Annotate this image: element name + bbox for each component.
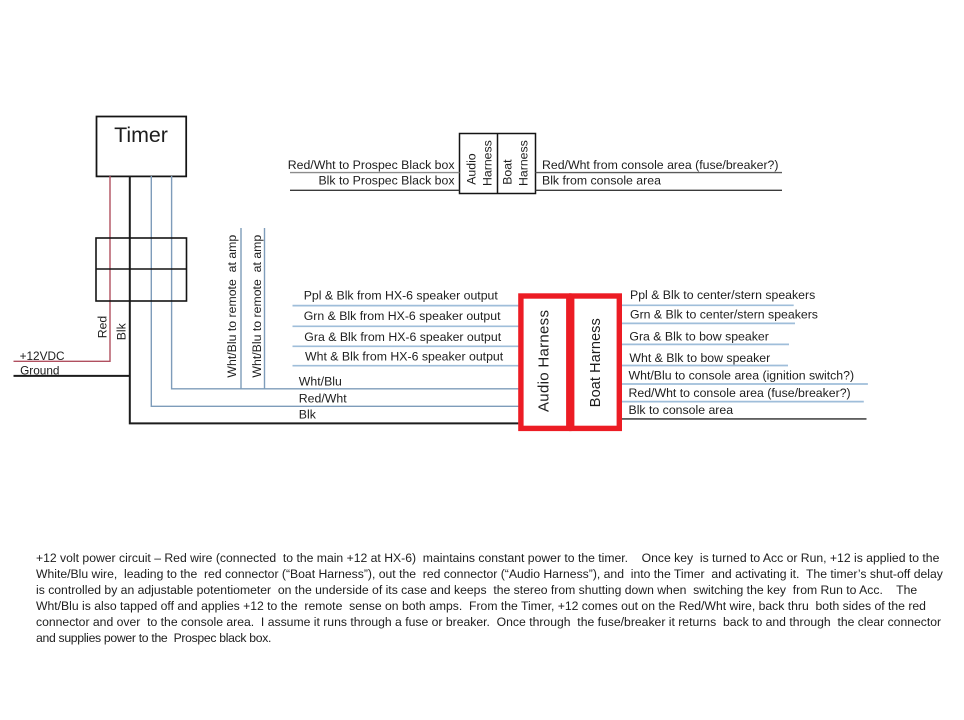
svg-text:Ppl & Blk from HX-6 speaker ou: Ppl & Blk from HX-6 speaker output xyxy=(304,289,499,303)
svg-text:Boat: Boat xyxy=(501,159,515,185)
svg-text:Red/Wht to console area (fuse/: Red/Wht to console area (fuse/breaker?) xyxy=(629,386,851,400)
svg-text:Audio Harness: Audio Harness xyxy=(536,310,553,412)
svg-text:Harness: Harness xyxy=(517,140,531,186)
svg-text:Grn & Blk from HX-6 speaker ou: Grn & Blk from HX-6 speaker output xyxy=(304,309,501,323)
svg-text:Red/Wht: Red/Wht xyxy=(299,392,347,406)
svg-text:Red: Red xyxy=(96,316,110,339)
svg-text:Harness: Harness xyxy=(481,140,495,186)
svg-text:Blk: Blk xyxy=(115,322,129,340)
svg-text:Wht & Blk to bow speaker: Wht & Blk to bow speaker xyxy=(629,351,770,365)
svg-text:Grn & Blk to center/stern spea: Grn & Blk to center/stern speakers xyxy=(630,308,818,322)
svg-text:Wht/Blu to remote at amp: Wht/Blu to remote at amp xyxy=(250,235,264,378)
svg-text:+12VDC: +12VDC xyxy=(20,349,65,363)
svg-text:Wht & Blk from HX-6 speaker ou: Wht & Blk from HX-6 speaker output xyxy=(305,349,504,363)
svg-text:Red/Wht from console area (fus: Red/Wht from console area (fuse/breaker?… xyxy=(542,158,778,172)
svg-text:Gra & Blk to bow speaker: Gra & Blk to bow speaker xyxy=(629,330,768,344)
svg-text:Red/Wht to Prospec Black box: Red/Wht to Prospec Black box xyxy=(288,158,456,172)
svg-text:Blk from console area: Blk from console area xyxy=(542,173,661,187)
svg-text:Wht/Blu: Wht/Blu xyxy=(299,374,342,388)
svg-text:Wht/Blu to console area (ignit: Wht/Blu to console area (ignition switch… xyxy=(629,368,855,382)
svg-text:Ground: Ground xyxy=(20,364,59,378)
svg-text:Boat Harness: Boat Harness xyxy=(588,318,604,407)
svg-text:Blk to console area: Blk to console area xyxy=(629,403,734,417)
svg-text:Timer: Timer xyxy=(114,123,168,147)
svg-text:Blk: Blk xyxy=(299,407,317,421)
svg-text:Audio: Audio xyxy=(465,153,479,185)
svg-text:Gra & Blk from HX-6 speaker ou: Gra & Blk from HX-6 speaker output xyxy=(304,330,501,344)
svg-text:Wht/Blu to remote at amp: Wht/Blu to remote at amp xyxy=(225,235,239,378)
svg-text:Blk to Prospec Black box: Blk to Prospec Black box xyxy=(318,173,455,187)
svg-text:Ppl & Blk to center/stern spea: Ppl & Blk to center/stern speakers xyxy=(630,288,815,302)
